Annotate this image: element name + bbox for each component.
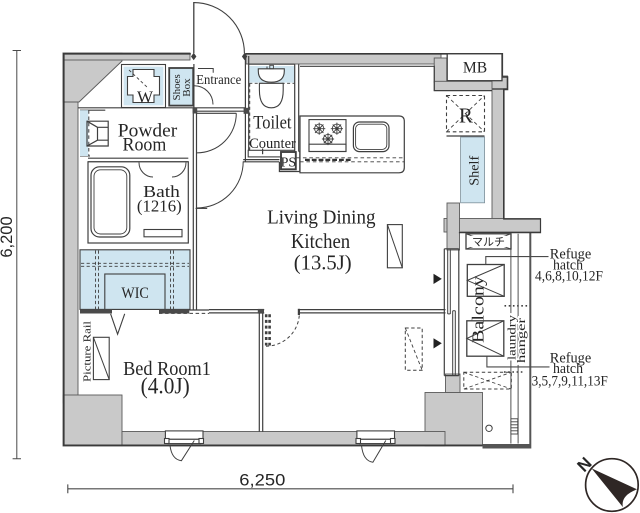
- svg-text:Box: Box: [181, 78, 193, 97]
- svg-text:Living Dining: Living Dining: [267, 207, 376, 228]
- svg-text:W: W: [137, 87, 154, 106]
- svg-text:Kitchen: Kitchen: [291, 229, 351, 253]
- svg-text:3,5,7,9,11,13F: 3,5,7,9,11,13F: [532, 373, 608, 389]
- svg-text:MB: MB: [463, 59, 487, 76]
- svg-text:Balcony: Balcony: [468, 275, 487, 343]
- svg-text:マルチ: マルチ: [472, 236, 505, 249]
- svg-text:6,200: 6,200: [0, 216, 16, 257]
- svg-text:Entrance: Entrance: [196, 73, 241, 88]
- svg-text:Picture Rail: Picture Rail: [82, 321, 93, 382]
- svg-text:WIC: WIC: [121, 285, 148, 302]
- svg-text:hanger: hanger: [516, 318, 528, 363]
- svg-text:PS: PS: [281, 155, 297, 170]
- svg-text:4,6,8,10,12F: 4,6,8,10,12F: [535, 269, 603, 285]
- svg-text:Room: Room: [123, 135, 167, 156]
- svg-text:6,250: 6,250: [239, 471, 285, 489]
- svg-text:Shelf: Shelf: [467, 155, 482, 185]
- svg-text:(13.5J): (13.5J): [294, 250, 352, 274]
- svg-text:Toilet: Toilet: [253, 113, 292, 134]
- svg-text:Counter: Counter: [249, 136, 296, 152]
- svg-text:R: R: [459, 103, 473, 127]
- svg-text:(4.0J): (4.0J): [141, 373, 190, 398]
- svg-text:(1216): (1216): [137, 197, 182, 216]
